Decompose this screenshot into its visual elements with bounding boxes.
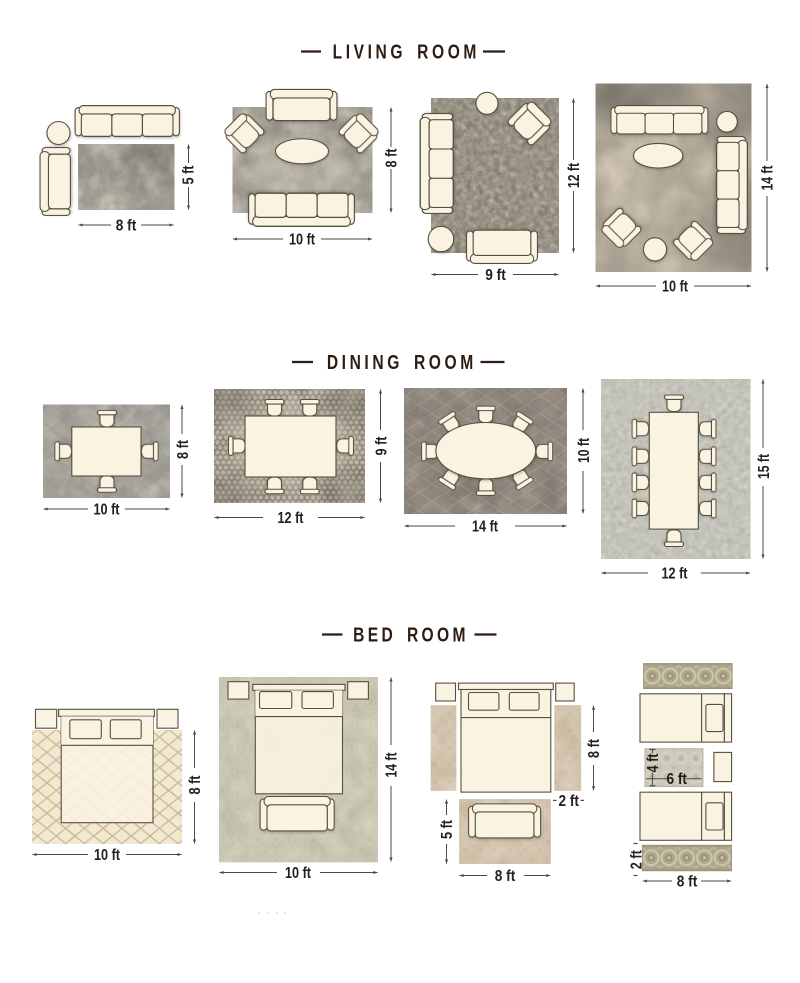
svg-text:5 ft: 5 ft <box>181 166 198 185</box>
svg-text:8 ft: 8 ft <box>677 874 698 891</box>
svg-text:12 ft: 12 ft <box>278 510 304 527</box>
svg-text:2 ft: 2 ft <box>628 850 645 869</box>
svg-text:10 ft: 10 ft <box>289 232 315 249</box>
svg-text:8 ft: 8 ft <box>586 739 603 758</box>
svg-text:BED ROOM: BED ROOM <box>353 624 469 646</box>
svg-text:14 ft: 14 ft <box>760 166 777 191</box>
svg-text:8 ft: 8 ft <box>187 776 204 795</box>
svg-text:8 ft: 8 ft <box>384 149 401 168</box>
svg-text:12 ft: 12 ft <box>662 566 688 583</box>
svg-text:10 ft: 10 ft <box>94 847 120 864</box>
svg-text:8 ft: 8 ft <box>116 218 137 235</box>
svg-text:9 ft: 9 ft <box>374 437 391 456</box>
svg-text:10 ft: 10 ft <box>285 865 311 882</box>
svg-text:10 ft: 10 ft <box>94 502 120 519</box>
svg-text:10 ft: 10 ft <box>576 438 593 463</box>
svg-text:8 ft: 8 ft <box>175 440 192 459</box>
svg-text:DINING ROOM: DINING ROOM <box>327 351 477 373</box>
svg-text:4 ft: 4 ft <box>645 754 662 773</box>
svg-text:14 ft: 14 ft <box>384 753 401 778</box>
svg-text:9 ft: 9 ft <box>485 267 506 284</box>
svg-text:8 ft: 8 ft <box>495 868 516 885</box>
svg-text:10 ft: 10 ft <box>662 279 688 296</box>
svg-text:14 ft: 14 ft <box>472 519 498 536</box>
svg-text:5 ft: 5 ft <box>439 820 456 839</box>
svg-text:15 ft: 15 ft <box>756 454 773 479</box>
svg-text:6 ft: 6 ft <box>666 771 687 788</box>
svg-text:LIVING ROOM: LIVING ROOM <box>333 41 480 63</box>
svg-text:2 ft: 2 ft <box>558 793 579 810</box>
svg-text:12 ft: 12 ft <box>566 163 583 188</box>
